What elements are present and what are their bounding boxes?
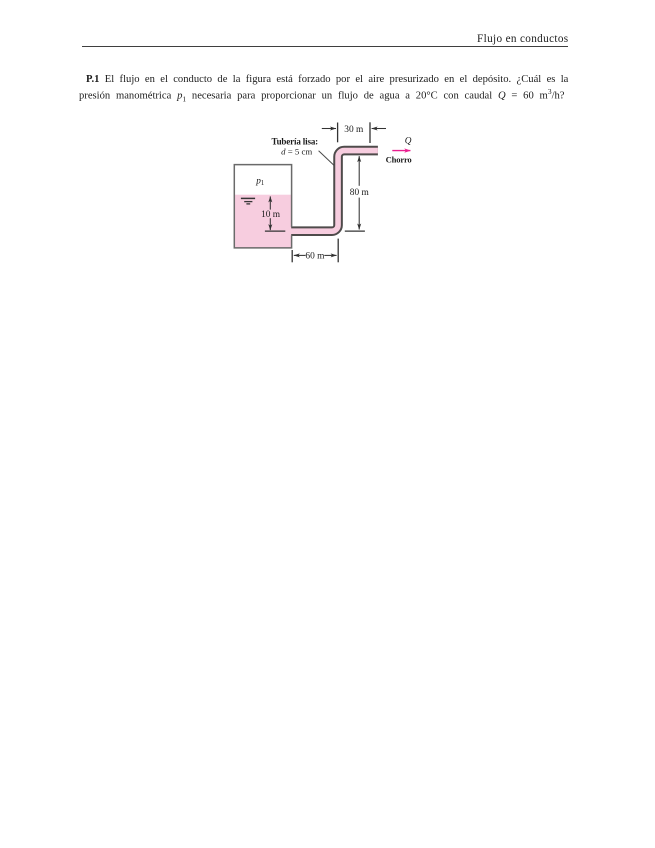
svg-text:80 m: 80 m bbox=[350, 188, 370, 198]
svg-text:30 m: 30 m bbox=[344, 125, 364, 135]
svg-text:d = 5 cm: d = 5 cm bbox=[281, 147, 312, 157]
svg-text:p1: p1 bbox=[255, 176, 264, 187]
svg-text:60 m: 60 m bbox=[305, 251, 325, 261]
svg-text:10 m: 10 m bbox=[261, 210, 281, 220]
svg-text:Q: Q bbox=[405, 136, 412, 146]
svg-text:Chorro: Chorro bbox=[386, 155, 412, 165]
svg-text:Tubería lisa:: Tubería lisa: bbox=[272, 137, 319, 147]
